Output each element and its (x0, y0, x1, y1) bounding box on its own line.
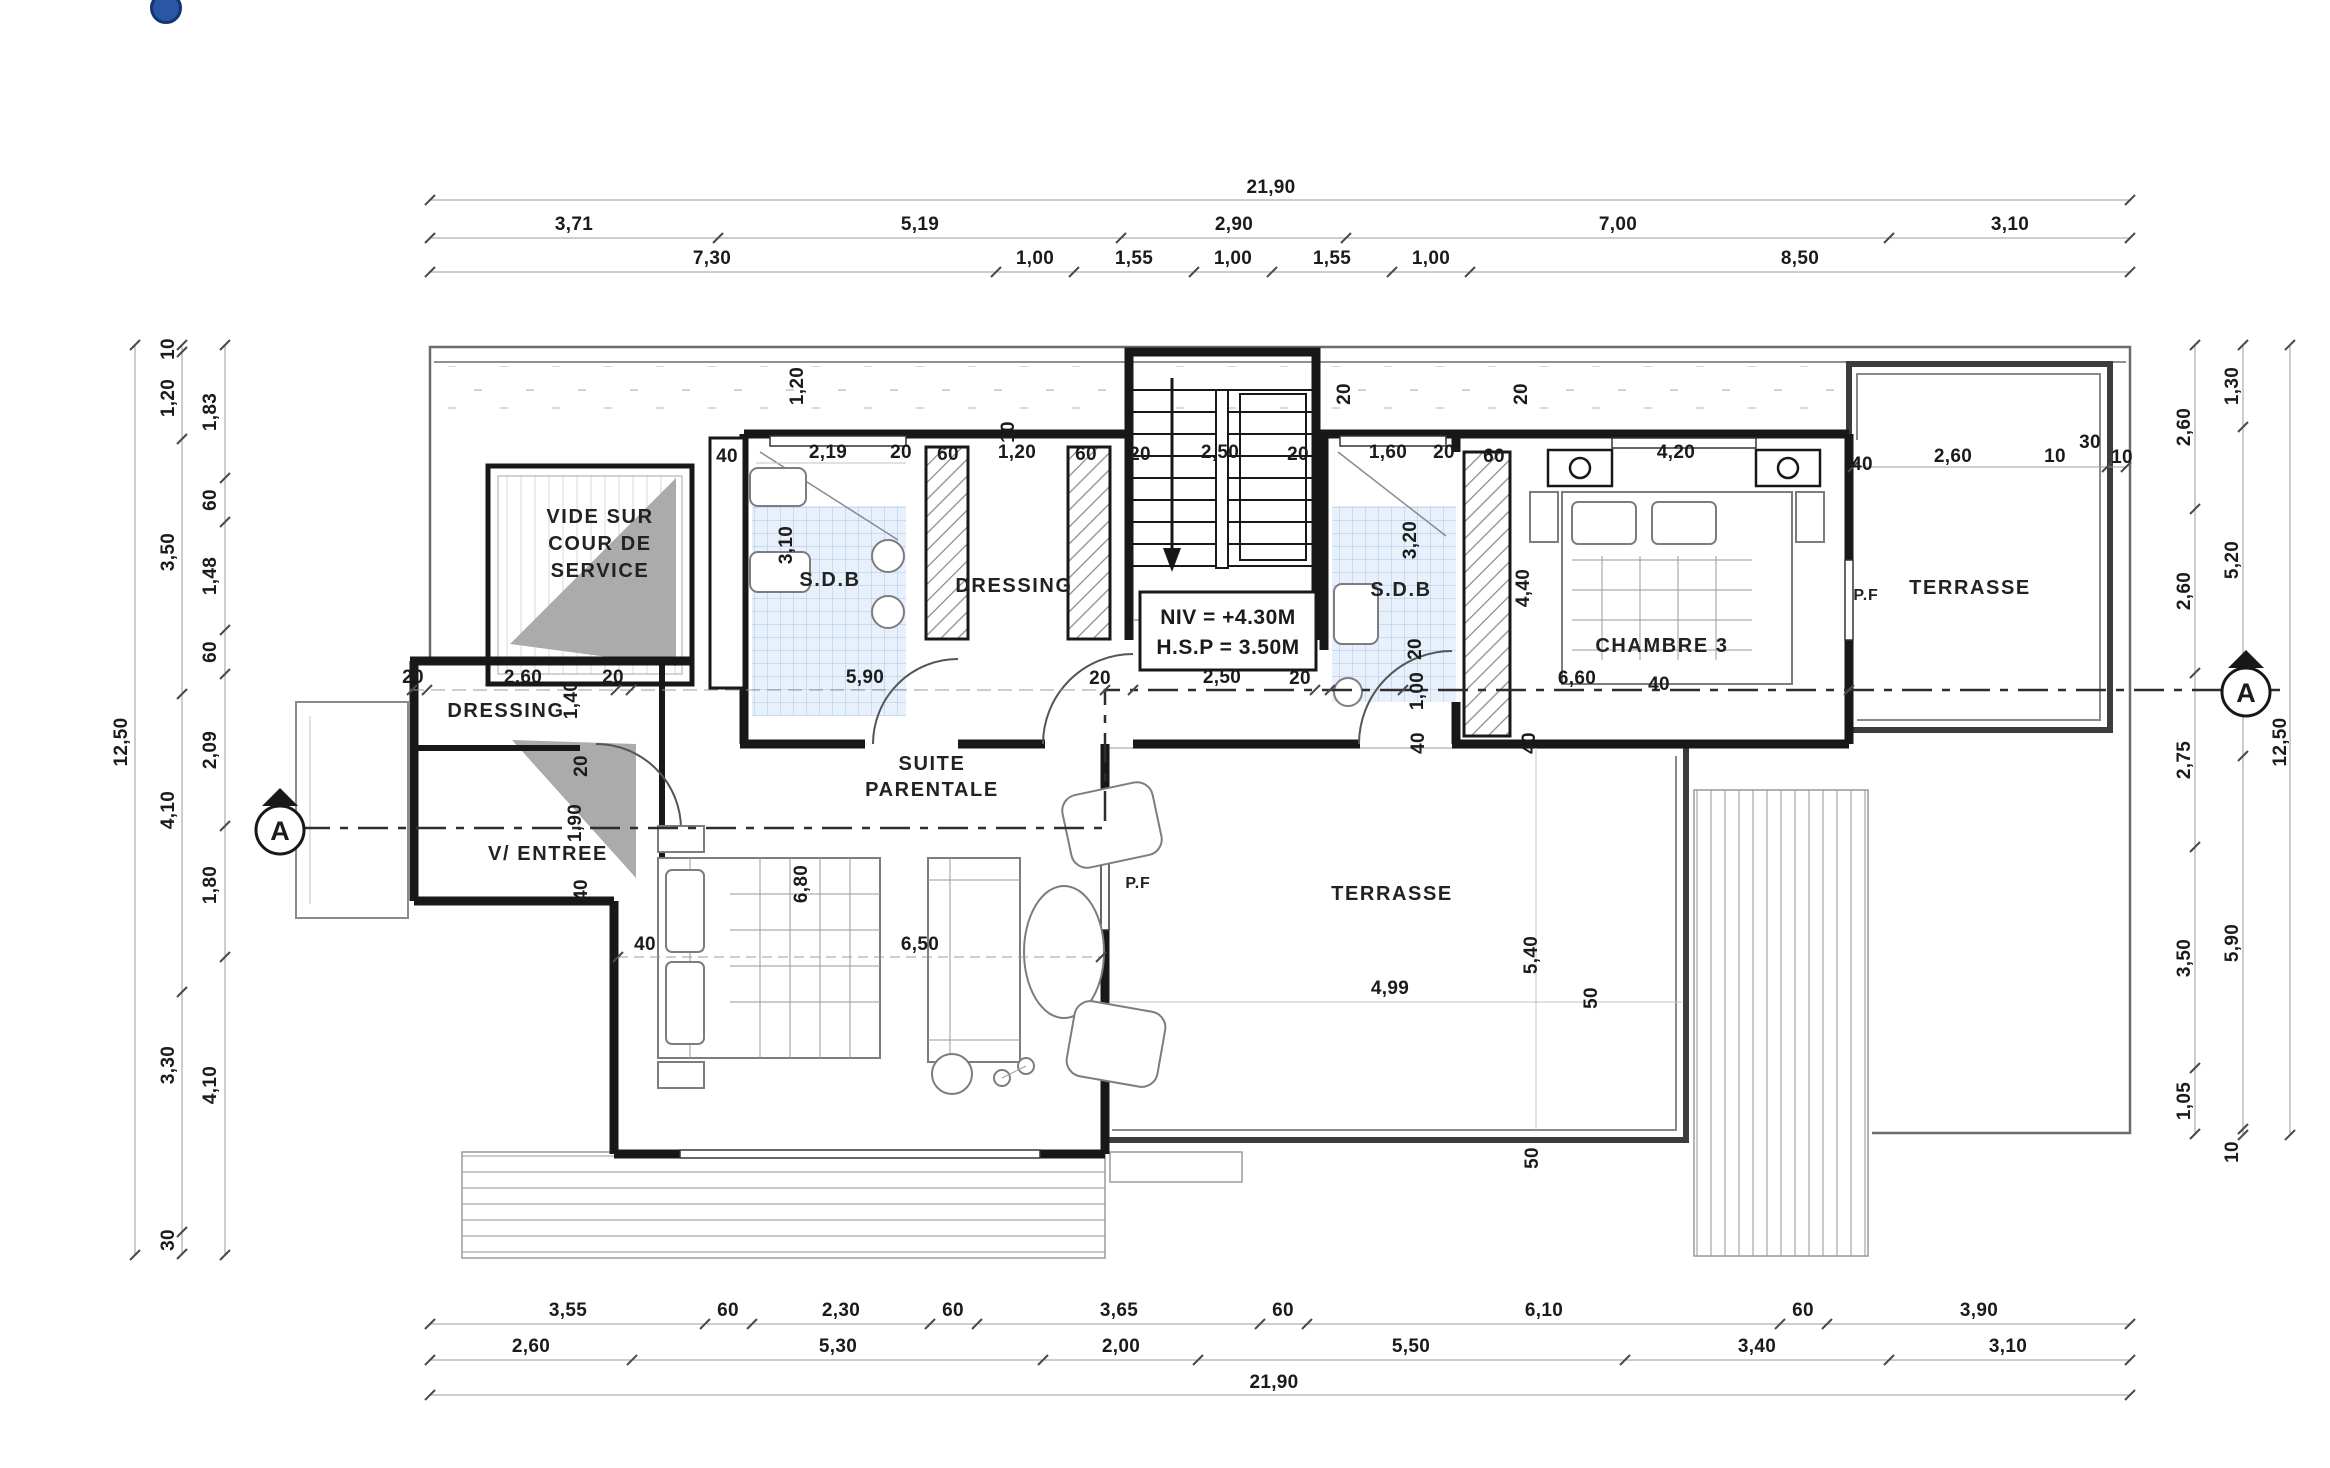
dim-label: 2,60 (512, 1336, 550, 1357)
dim-label: 50 (1522, 1147, 1543, 1169)
dim-label: 20 (1289, 668, 1311, 689)
dim-label: 3,30 (158, 1046, 179, 1084)
dim-label: 2,30 (822, 1300, 860, 1321)
dim-label: 3,50 (2174, 939, 2195, 977)
dim-label: 4,40 (1513, 569, 1534, 607)
dim-label: 2,60 (2174, 408, 2195, 446)
dim-label: 1,00 (1407, 672, 1428, 710)
dim-label: 2,19 (809, 442, 847, 463)
dim-label: 3,55 (549, 1300, 587, 1321)
dim-label: 1,60 (1369, 442, 1407, 463)
dim-label: 1,55 (1115, 248, 1153, 269)
dim-label: 60 (937, 444, 959, 465)
floor-plan-drawing: A A NIV = +4.30M H.S.P = 3.50M 21,903,71… (0, 0, 2330, 1468)
dim-label: 3,20 (1400, 521, 1421, 559)
room-label: CHAMBRE 3 (1595, 635, 1728, 657)
dim-label: 10 (2044, 446, 2066, 467)
dim-label: 10 (998, 421, 1019, 443)
dim-label: 2,50 (1201, 442, 1239, 463)
dim-label: 60 (200, 489, 221, 511)
dim-label: 1,48 (200, 557, 221, 595)
dim-label: 5,20 (2222, 541, 2243, 579)
dim-label: 40 (634, 934, 656, 955)
dim-label: 7,00 (1599, 214, 1637, 235)
dim-label: 2,60 (1934, 446, 1972, 467)
dim-label: 4,10 (200, 1066, 221, 1104)
room-label: SUITE (899, 753, 966, 775)
dim-label: 5,30 (819, 1336, 857, 1357)
room-label: TERRASSE (1909, 577, 2031, 599)
dim-label: 40 (1408, 732, 1429, 754)
dim-label: 2,50 (1203, 667, 1241, 688)
dim-label: 20 (890, 442, 912, 463)
dim-label: 40 (1648, 674, 1670, 695)
annotation-labels: 21,903,715,192,907,003,107,301,001,551,0… (111, 177, 2291, 1393)
dim-label: 1,90 (565, 804, 586, 842)
dim-label: 60 (942, 1300, 964, 1321)
room-label: PARENTALE (865, 779, 999, 801)
dim-label: 60 (1075, 444, 1097, 465)
dim-label: 20 (1511, 383, 1532, 405)
level-line1: NIV = +4.30M (1160, 606, 1296, 629)
dim-label: 1,30 (2222, 367, 2243, 405)
dim-label: 20 (1334, 383, 1355, 405)
dim-label: 20 (1433, 442, 1455, 463)
section-marker-right: A (2222, 650, 2270, 716)
dim-label: 2,90 (1215, 214, 1253, 235)
dim-label: 6,80 (791, 865, 812, 903)
dim-label: 2,60 (2174, 572, 2195, 610)
deck-bottom-left (462, 1152, 1105, 1258)
dim-label: 6,60 (1558, 668, 1596, 689)
dim-label: 3,50 (158, 533, 179, 571)
room-label: P.F (1125, 875, 1150, 892)
step-bottom (1110, 1152, 1242, 1182)
dim-label: 6,50 (901, 934, 939, 955)
dim-label: 3,90 (1960, 1300, 1998, 1321)
level-box: NIV = +4.30M H.S.P = 3.50M (1140, 592, 1316, 670)
dim-label: 50 (1581, 987, 1602, 1009)
dim-label: 40 (716, 446, 738, 467)
entry-landing (296, 702, 408, 918)
room-label: S.D.B (1370, 579, 1431, 601)
dim-label: 20 (602, 667, 624, 688)
dim-label: 20 (571, 755, 592, 777)
room-label: S.D.B (799, 569, 860, 591)
dim-label: 1,80 (200, 866, 221, 904)
dim-label: 1,00 (1016, 248, 1054, 269)
level-line2: H.S.P = 3.50M (1156, 636, 1299, 659)
floor-plan-page: A A NIV = +4.30M H.S.P = 3.50M 21,903,71… (0, 0, 2330, 1468)
dim-label: 6,10 (1525, 1300, 1563, 1321)
dim-label: 40 (1851, 454, 1873, 475)
dim-label: 30 (158, 1229, 179, 1251)
room-label: V/ ENTREE (488, 843, 608, 865)
dim-label: 3,71 (555, 214, 593, 235)
dim-label: 12,50 (111, 717, 132, 766)
room-label: VIDE SUR (546, 506, 653, 528)
room-label: TERRASSE (1331, 883, 1453, 905)
dim-label: 40 (1519, 732, 1540, 754)
deck-right (1694, 790, 1868, 1256)
dim-label: 4,10 (158, 791, 179, 829)
dim-label: 3,10 (1991, 214, 2029, 235)
terrace-topright-railing (1849, 364, 2110, 744)
room-label: SERVICE (551, 560, 650, 582)
dim-label: 3,65 (1100, 1300, 1138, 1321)
dim-label: 5,50 (1392, 1336, 1430, 1357)
wall-pier (710, 438, 744, 688)
dim-label: 4,99 (1371, 978, 1409, 999)
dim-label: 8,50 (1781, 248, 1819, 269)
dim-label: 20 (1287, 444, 1309, 465)
dim-label: 1,20 (998, 442, 1036, 463)
room-label: DRESSING (447, 700, 564, 722)
section-letter: A (2236, 678, 2256, 708)
dim-label: 1,20 (787, 367, 808, 405)
dim-label: 60 (1483, 446, 1505, 467)
dim-label: 7,30 (693, 248, 731, 269)
dim-label: 1,05 (2174, 1082, 2195, 1120)
roof-strip-pattern (436, 366, 1840, 428)
dim-label: 3,10 (1989, 1336, 2027, 1357)
dim-label: 40 (571, 879, 592, 901)
dim-label: 5,40 (1521, 936, 1542, 974)
dim-label: 12,50 (2270, 717, 2291, 766)
room-label: COUR DE (548, 533, 651, 555)
dim-label: 20 (1129, 444, 1151, 465)
dim-label: 2,60 (504, 667, 542, 688)
dim-label: 2,09 (200, 731, 221, 769)
dim-label: 10 (158, 338, 179, 360)
terrace-lower-railing (1105, 748, 1686, 1140)
dim-label: 30 (2079, 432, 2101, 453)
dim-label: 21,90 (1249, 1372, 1298, 1393)
dim-label: 10 (2222, 1141, 2243, 1163)
dim-label: 1,00 (1214, 248, 1252, 269)
dim-label: 1,00 (1412, 248, 1450, 269)
dim-label: 5,90 (846, 667, 884, 688)
dim-label: 3,10 (776, 526, 797, 564)
room-label: P.F (1853, 587, 1878, 604)
dim-label: 2,75 (2174, 741, 2195, 779)
dim-label: 1,83 (200, 393, 221, 431)
dim-label: 60 (1792, 1300, 1814, 1321)
dim-label: 4,20 (1657, 442, 1695, 463)
dim-label: 10 (2111, 447, 2133, 468)
dim-label: 60 (1272, 1300, 1294, 1321)
dim-label: 5,19 (901, 214, 939, 235)
dim-label: 60 (717, 1300, 739, 1321)
section-letter: A (270, 816, 290, 846)
dim-label: 1,20 (158, 379, 179, 417)
dim-label: 20 (402, 667, 424, 688)
dim-label: 2,00 (1102, 1336, 1140, 1357)
stair-arrow-icon (1163, 548, 1181, 572)
dim-label: 20 (1089, 668, 1111, 689)
dim-label: 5,90 (2222, 924, 2243, 962)
dim-label: 60 (200, 641, 221, 663)
room-label: DRESSING (955, 575, 1072, 597)
dim-label: 20 (1405, 638, 1426, 660)
dim-label: 21,90 (1246, 177, 1295, 198)
dim-label: 1,55 (1313, 248, 1351, 269)
dim-label: 3,40 (1738, 1336, 1776, 1357)
